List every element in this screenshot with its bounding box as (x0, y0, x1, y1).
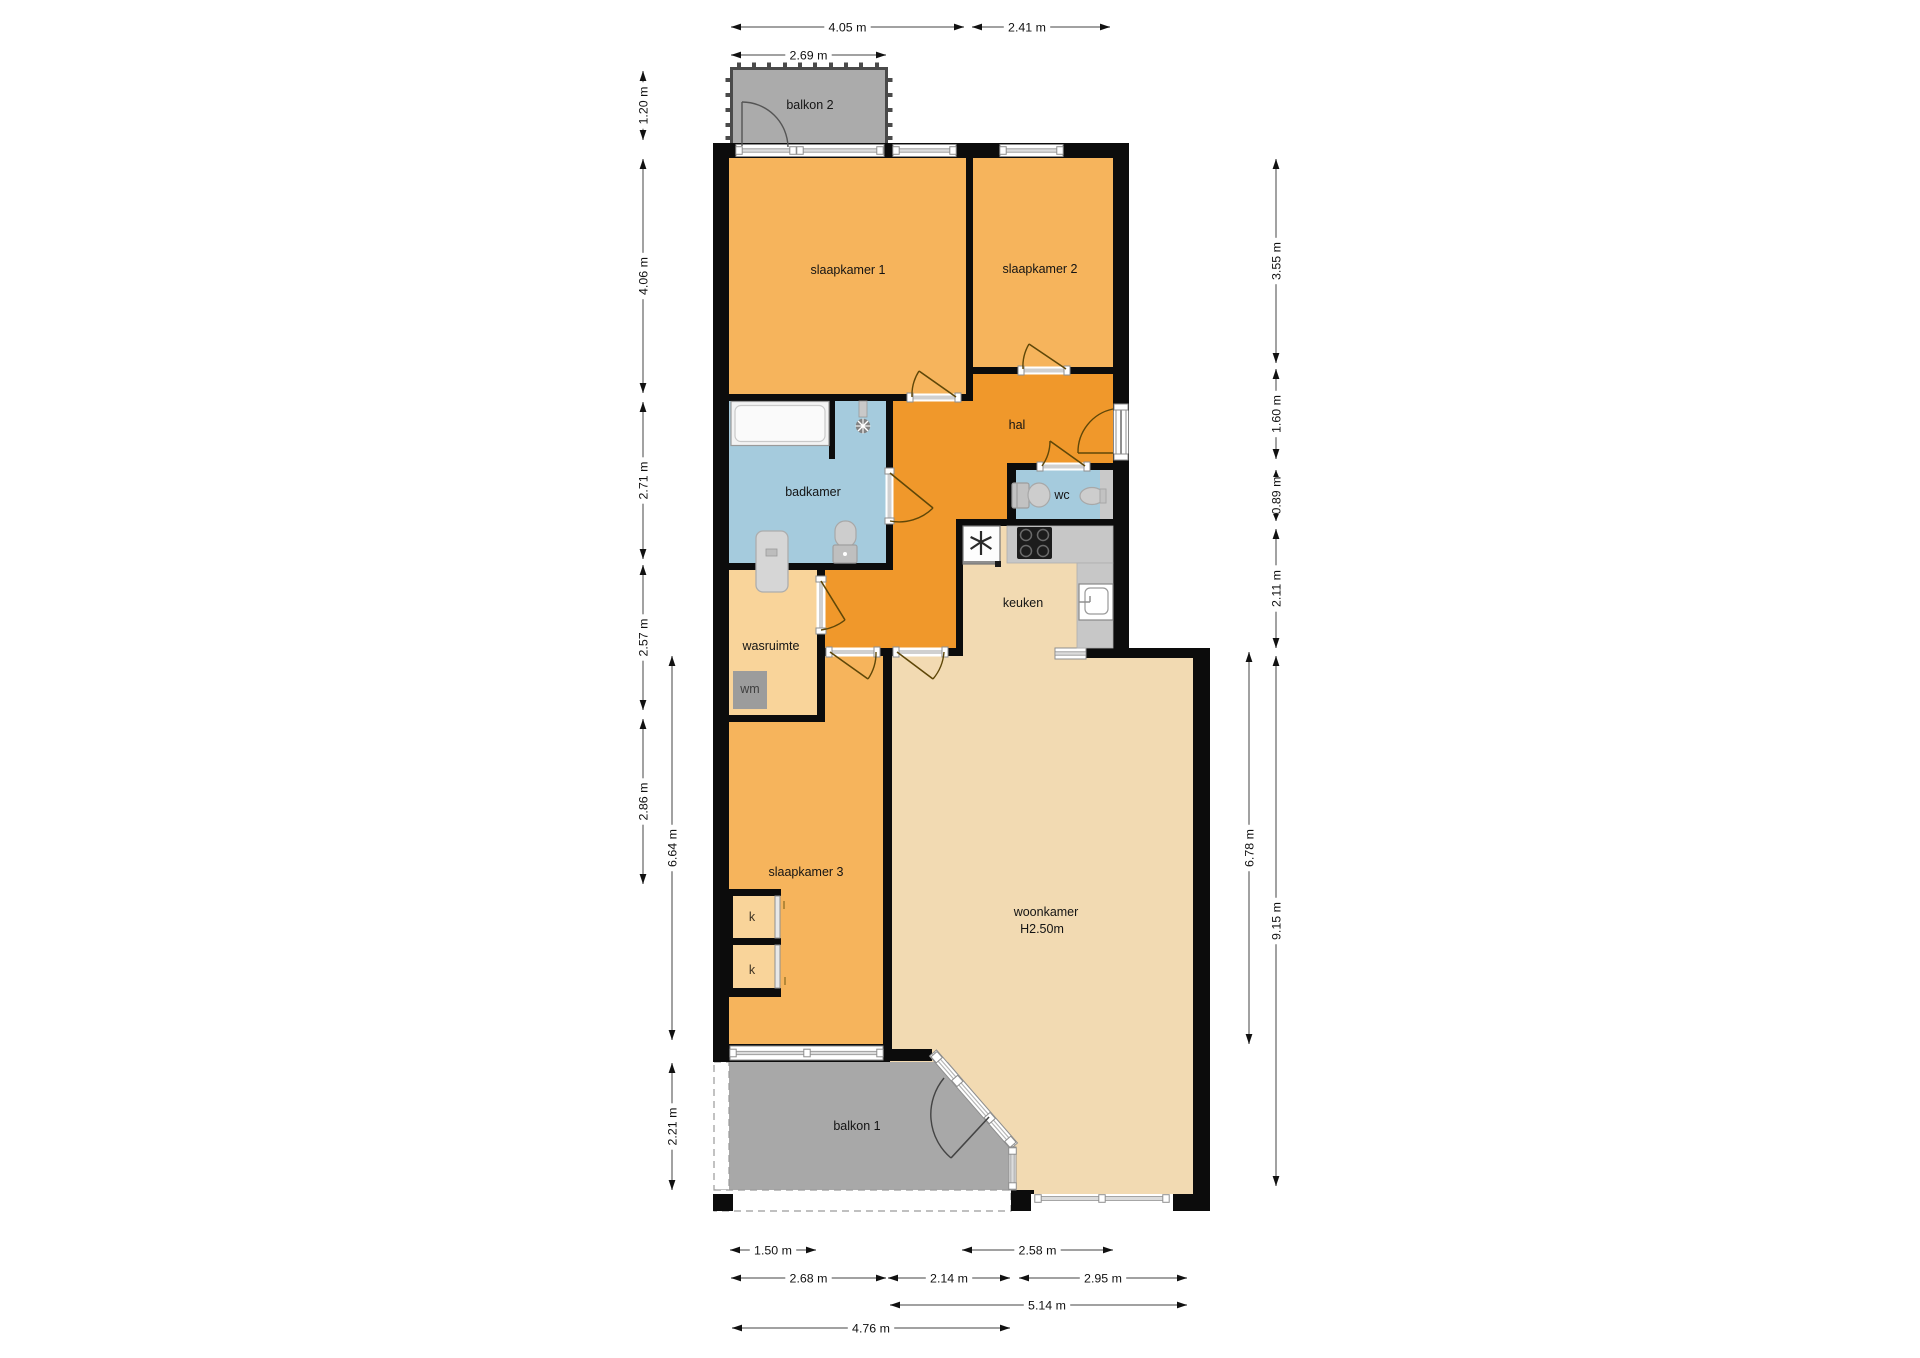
svg-text:6.64 m: 6.64 m (665, 829, 679, 867)
svg-text:0.89 m: 0.89 m (1269, 477, 1283, 515)
svg-text:slaapkamer 1: slaapkamer 1 (810, 263, 885, 277)
svg-text:6.78 m: 6.78 m (1242, 829, 1256, 867)
svg-text:5.14 m: 5.14 m (1028, 1298, 1066, 1312)
svg-text:3.55 m: 3.55 m (1269, 242, 1283, 280)
svg-text:4.05 m: 4.05 m (829, 20, 867, 34)
svg-text:1.50 m: 1.50 m (754, 1243, 792, 1257)
svg-text:1.20 m: 1.20 m (636, 87, 650, 125)
svg-text:9.15 m: 9.15 m (1269, 902, 1283, 940)
svg-text:2.68 m: 2.68 m (790, 1271, 828, 1285)
svg-text:woonkamer: woonkamer (1013, 905, 1079, 919)
svg-text:4.76 m: 4.76 m (852, 1321, 890, 1335)
svg-text:2.86 m: 2.86 m (636, 783, 650, 821)
svg-text:badkamer: badkamer (785, 485, 841, 499)
svg-text:hal: hal (1009, 418, 1026, 432)
svg-text:balkon 2: balkon 2 (786, 98, 833, 112)
svg-text:4.06 m: 4.06 m (636, 257, 650, 295)
svg-text:slaapkamer 3: slaapkamer 3 (768, 865, 843, 879)
svg-text:2.57 m: 2.57 m (636, 619, 650, 657)
svg-text:k: k (749, 963, 756, 977)
svg-text:wasruimte: wasruimte (742, 639, 800, 653)
svg-text:H2.50m: H2.50m (1020, 922, 1064, 936)
svg-text:wm: wm (739, 682, 759, 696)
svg-text:balkon 1: balkon 1 (833, 1119, 880, 1133)
svg-text:2.69 m: 2.69 m (790, 48, 828, 62)
svg-text:2.71 m: 2.71 m (636, 462, 650, 500)
svg-text:2.14 m: 2.14 m (930, 1271, 968, 1285)
svg-text:2.11 m: 2.11 m (1269, 570, 1283, 607)
svg-text:keuken: keuken (1003, 596, 1043, 610)
svg-text:1.60 m: 1.60 m (1269, 395, 1283, 433)
svg-text:2.95 m: 2.95 m (1084, 1271, 1122, 1285)
svg-text:2.21 m: 2.21 m (665, 1108, 679, 1146)
svg-text:k: k (749, 910, 756, 924)
svg-text:slaapkamer 2: slaapkamer 2 (1002, 262, 1077, 276)
svg-text:wc: wc (1053, 488, 1069, 502)
svg-text:2.41 m: 2.41 m (1008, 20, 1046, 34)
svg-text:2.58 m: 2.58 m (1019, 1243, 1057, 1257)
